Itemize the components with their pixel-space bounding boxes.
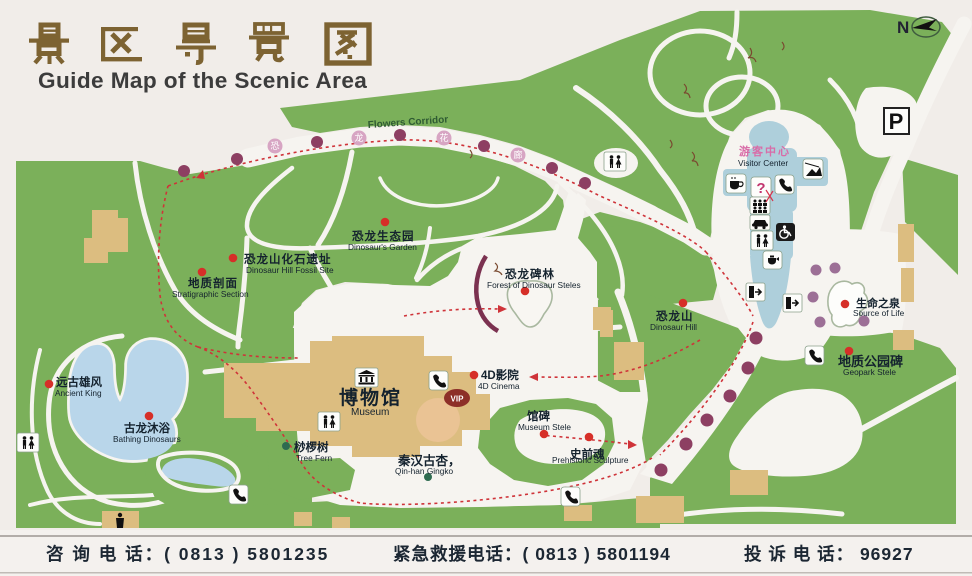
svg-text:远古雄风: 远古雄风 (56, 375, 102, 389)
svg-text:博物馆: 博物馆 (339, 386, 402, 409)
svg-text:游客中心: 游客中心 (739, 144, 791, 158)
svg-text:地质剖面: 地质剖面 (188, 276, 238, 290)
svg-text:4D影院: 4D影院 (481, 368, 519, 382)
svg-text:Visitor Center: Visitor Center (738, 158, 788, 168)
svg-text:投 诉 电 话： 96927: 投 诉 电 话： 96927 (744, 544, 914, 564)
svg-text:Geopark Stele: Geopark Stele (843, 367, 896, 377)
svg-text:桫椤树: 桫椤树 (294, 440, 329, 454)
svg-text:Forest of Dinosaur Steles: Forest of Dinosaur Steles (487, 280, 581, 290)
svg-text:Stratigraphic Section: Stratigraphic Section (172, 289, 249, 299)
svg-text:恐龙生态园: 恐龙生态园 (352, 229, 415, 243)
svg-text:VIP: VIP (451, 395, 465, 404)
svg-text:N: N (897, 18, 909, 37)
svg-text:古龙沐浴: 古龙沐浴 (124, 421, 170, 435)
svg-text:恐龙碑林: 恐龙碑林 (505, 267, 555, 281)
svg-text:Prehistoric Sculpture: Prehistoric Sculpture (552, 455, 629, 465)
svg-text:龙: 龙 (354, 132, 363, 143)
svg-text:恐龙山化石遗址: 恐龙山化石遗址 (244, 252, 332, 266)
svg-text:Museum Stele: Museum Stele (518, 422, 571, 432)
svg-text:恐龙山: 恐龙山 (656, 309, 694, 323)
svg-text:Source of Life: Source of Life (853, 308, 905, 318)
svg-text:Bathing Dinosaurs: Bathing Dinosaurs (113, 434, 181, 444)
svg-text:P: P (889, 109, 904, 134)
svg-text:Ancient King: Ancient King (55, 388, 102, 398)
svg-text:Dinosaur's Garden: Dinosaur's Garden (348, 242, 417, 252)
svg-text:恐: 恐 (270, 141, 279, 151)
svg-text:紧急救援电话：( 0813 ) 5801194: 紧急救援电话：( 0813 ) 5801194 (393, 544, 671, 564)
svg-text:花: 花 (439, 132, 448, 143)
svg-text:?: ? (756, 180, 765, 197)
svg-text:Guide Map of the Scenic Area: Guide Map of the Scenic Area (38, 68, 367, 93)
svg-text:Tree Fern: Tree Fern (296, 453, 333, 463)
svg-text:Museum: Museum (351, 407, 389, 418)
svg-text:廊: 廊 (513, 149, 522, 160)
svg-text:馆碑: 馆碑 (527, 409, 550, 423)
svg-text:Dinosaur Hill: Dinosaur Hill (650, 322, 697, 332)
svg-text:Qin-han Gingko: Qin-han Gingko (395, 466, 453, 476)
svg-text:咨 询 电 话：( 0813 ) 5801235: 咨 询 电 话：( 0813 ) 5801235 (46, 544, 329, 564)
svg-text:Dinosaur Hill Fossil Site: Dinosaur Hill Fossil Site (246, 265, 334, 275)
svg-text:4D Cinema: 4D Cinema (478, 381, 520, 391)
